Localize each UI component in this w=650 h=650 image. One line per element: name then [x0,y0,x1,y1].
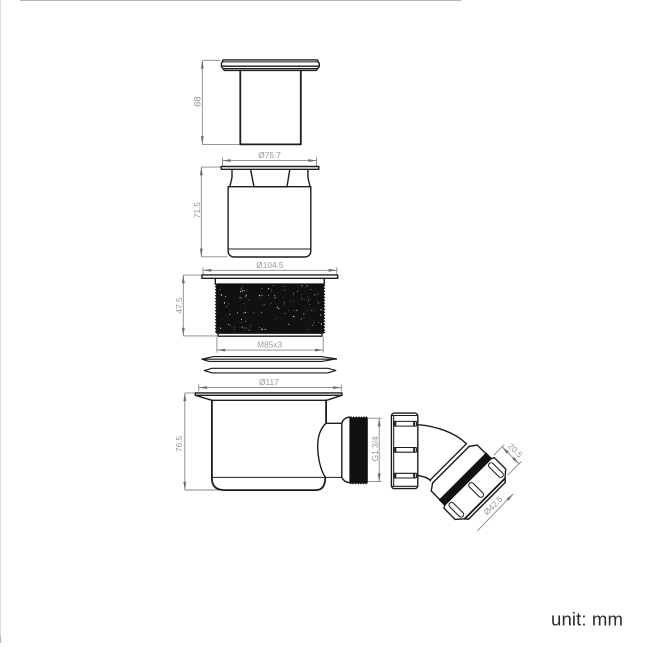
svg-text:71.5: 71.5 [192,202,202,219]
svg-text:M85x3: M85x3 [257,339,282,349]
svg-text:unit: mm: unit: mm [551,609,623,630]
svg-text:Ø75.7: Ø75.7 [258,150,281,160]
svg-text:47.5: 47.5 [174,297,184,314]
svg-text:G1 3/4: G1 3/4 [370,436,380,461]
svg-text:76.5: 76.5 [174,435,184,452]
svg-text:68: 68 [193,96,204,107]
svg-text:Ø117: Ø117 [259,377,279,387]
svg-text:Ø104.5: Ø104.5 [256,260,284,270]
